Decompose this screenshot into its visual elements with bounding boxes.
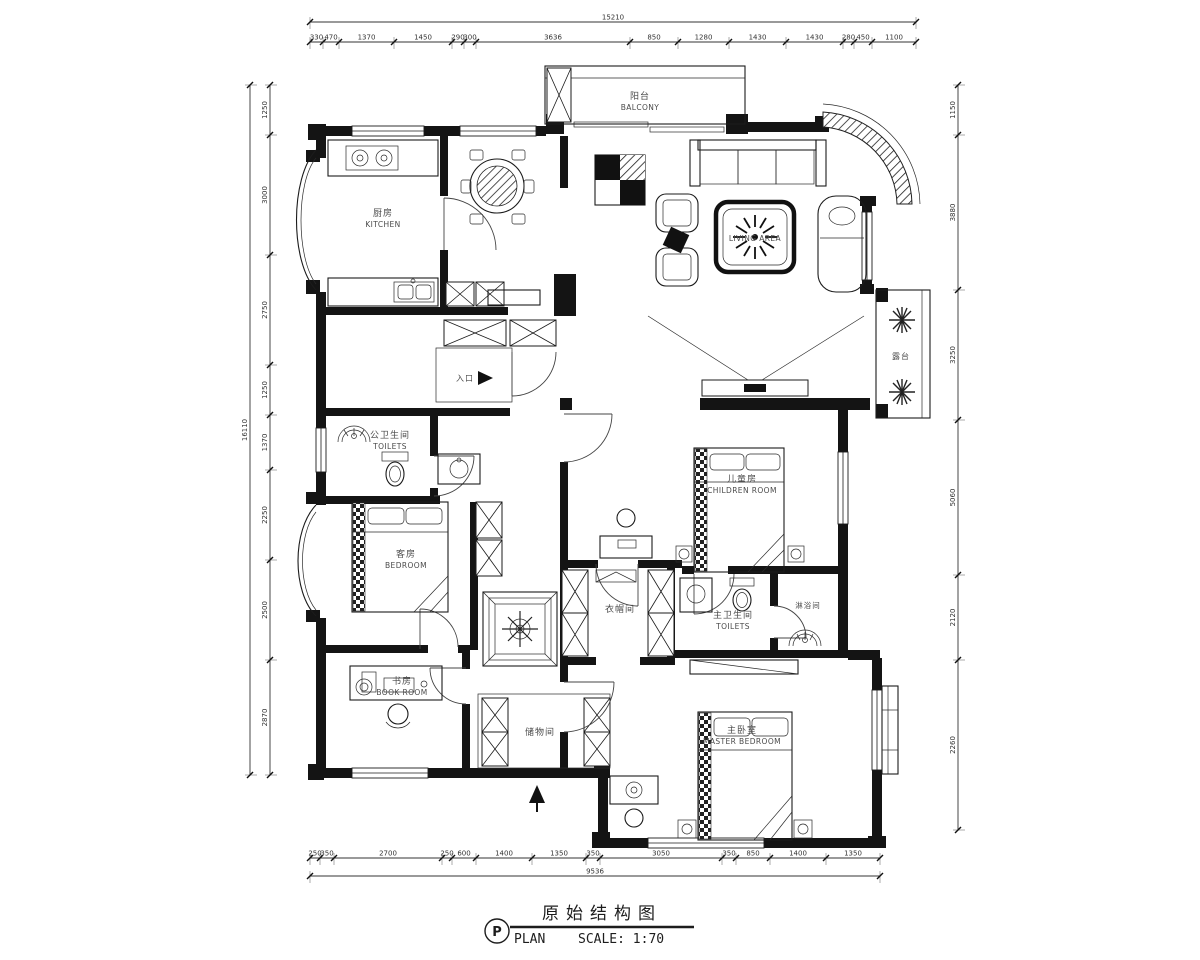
nightstand (676, 546, 692, 562)
svg-text:600: 600 (457, 850, 470, 858)
public-toilet-label: 公卫生间 (370, 429, 410, 441)
svg-text:1100: 1100 (885, 34, 903, 42)
svg-text:BALCONY: BALCONY (621, 103, 660, 112)
svg-text:KITCHEN: KITCHEN (365, 220, 400, 229)
kitchen-label: 厨房 (373, 207, 393, 219)
dresser (610, 776, 658, 804)
svg-text:CHILDREN ROOM: CHILDREN ROOM (707, 486, 777, 495)
svg-text:2750: 2750 (261, 301, 269, 319)
scale-label: SCALE: 1:70 (578, 932, 664, 947)
closet-label: 衣帽间 (605, 603, 635, 615)
svg-text:BEDROOM: BEDROOM (385, 561, 427, 570)
entry-vestibule (436, 348, 556, 402)
closet-furniture (596, 570, 636, 582)
master-toilet-label: 主卫生间 (713, 609, 753, 621)
svg-text:1430: 1430 (806, 34, 824, 42)
svg-text:TOILETS: TOILETS (372, 442, 407, 451)
plan-symbol: P (492, 925, 502, 940)
svg-text:3250: 3250 (949, 346, 957, 364)
floor-tile-sample (595, 155, 645, 205)
shower-label: 淋浴间 (795, 600, 821, 610)
study-furniture (350, 666, 442, 728)
svg-text:2870: 2870 (261, 709, 269, 727)
dimension-left-total: 16110 (241, 82, 257, 778)
cabinets (444, 282, 674, 766)
svg-text:TOILETS: TOILETS (715, 622, 750, 631)
svg-text:1250: 1250 (261, 381, 269, 399)
svg-text:3636: 3636 (544, 34, 562, 42)
toilet (730, 578, 754, 611)
stove (346, 146, 398, 170)
svg-text:15210: 15210 (602, 14, 624, 22)
svg-text:2500: 2500 (261, 601, 269, 619)
curved-balcony-hatch (823, 104, 920, 204)
svg-text:350: 350 (722, 850, 735, 858)
kitchen-bay-window (297, 150, 317, 290)
sink-vanity (680, 578, 712, 612)
floorplan-canvas: 厨房 KITCHEN 阳台 BALCONY LIVING AREA 儿童房 CH… (0, 0, 1200, 960)
svg-text:1400: 1400 (789, 850, 807, 858)
svg-text:1250: 1250 (261, 101, 269, 119)
master-bedroom-furniture (610, 660, 812, 840)
entry-label: 入口 (456, 374, 474, 383)
side-table (663, 227, 690, 254)
nightstand (788, 546, 804, 562)
chair (388, 704, 408, 724)
svg-text:9536: 9536 (586, 868, 604, 876)
dimension-top-total: 15210 (307, 14, 919, 30)
nightstand (678, 820, 696, 838)
dimension-right: 115038803250506021202260 (949, 82, 965, 833)
svg-text:2250: 2250 (261, 506, 269, 524)
svg-text:1280: 1280 (695, 34, 713, 42)
svg-text:1370: 1370 (261, 434, 269, 452)
svg-text:280: 280 (842, 34, 855, 42)
svg-text:850: 850 (746, 850, 759, 858)
dimension-top: 3304701370145029030036368501280143014302… (307, 34, 919, 50)
svg-text:1370: 1370 (358, 34, 376, 42)
svg-text:3000: 3000 (261, 186, 269, 204)
svg-text:3050: 3050 (652, 850, 670, 858)
svg-text:5060: 5060 (949, 489, 957, 507)
entry-arrow-icon (478, 371, 493, 385)
svg-text:BOOK ROOM: BOOK ROOM (376, 688, 427, 697)
children-room-label: 儿童房 (727, 473, 757, 485)
master-room-label: 主卧室 (727, 724, 757, 736)
projector-screen (702, 380, 808, 396)
svg-text:470: 470 (324, 34, 337, 42)
svg-text:300: 300 (463, 34, 476, 42)
svg-text:850: 850 (647, 34, 660, 42)
desk (600, 536, 652, 558)
svg-text:16110: 16110 (241, 419, 249, 441)
svg-text:350: 350 (320, 850, 333, 858)
monitor (362, 672, 376, 692)
terrace-label: 露台 (892, 351, 910, 361)
balcony-label: 阳台 (630, 90, 650, 102)
armchair (656, 248, 698, 286)
svg-text:1150: 1150 (949, 101, 957, 119)
svg-text:1400: 1400 (495, 850, 513, 858)
guest-bay-window (298, 505, 316, 616)
floorplan-page: 厨房 KITCHEN 阳台 BALCONY LIVING AREA 儿童房 CH… (0, 0, 1200, 960)
stool (625, 809, 643, 827)
floor-medallion (483, 592, 557, 666)
svg-text:MASTER BEDROOM: MASTER BEDROOM (703, 737, 781, 746)
svg-text:1430: 1430 (749, 34, 767, 42)
dimension-bottom-total: 9536 (307, 868, 883, 884)
wash-basin (338, 426, 370, 442)
living-label: LIVING AREA (729, 234, 782, 243)
title-block: P 原始结构图 PLAN SCALE: 1:70 (485, 904, 694, 947)
drawing-title: 原始结构图 (542, 904, 662, 924)
sofa (690, 140, 826, 186)
chaise-lounge (818, 196, 866, 292)
toilet (382, 452, 408, 486)
kitchen-sink (394, 279, 434, 302)
svg-text:2260: 2260 (949, 736, 957, 754)
svg-text:1350: 1350 (550, 850, 568, 858)
svg-text:1350: 1350 (844, 850, 862, 858)
dimension-bottom: 2503502700250600140013503503050350850140… (307, 850, 883, 866)
svg-text:330: 330 (310, 34, 323, 42)
svg-text:250: 250 (440, 850, 453, 858)
master-bay-window (882, 686, 898, 774)
plant-icon (889, 379, 915, 405)
svg-text:2120: 2120 (949, 609, 957, 627)
living-furniture (595, 140, 866, 396)
guest-room-label: 客房 (396, 548, 416, 560)
storage-label: 储物间 (525, 726, 555, 738)
svg-text:450: 450 (856, 34, 869, 42)
direction-arrow-icon (529, 785, 545, 812)
nightstand (794, 820, 812, 838)
plant-icon (889, 307, 915, 333)
svg-text:350: 350 (586, 850, 599, 858)
svg-text:1450: 1450 (414, 34, 432, 42)
svg-text:2700: 2700 (379, 850, 397, 858)
armchair (656, 194, 698, 232)
study-label: 书房 (392, 675, 412, 687)
dimension-left: 12503000275012501370225025002870 (261, 82, 277, 778)
plan-label: PLAN (514, 932, 545, 947)
bed (694, 448, 784, 572)
svg-text:3880: 3880 (949, 204, 957, 222)
chair (617, 509, 635, 527)
children-room-furniture (600, 448, 804, 572)
